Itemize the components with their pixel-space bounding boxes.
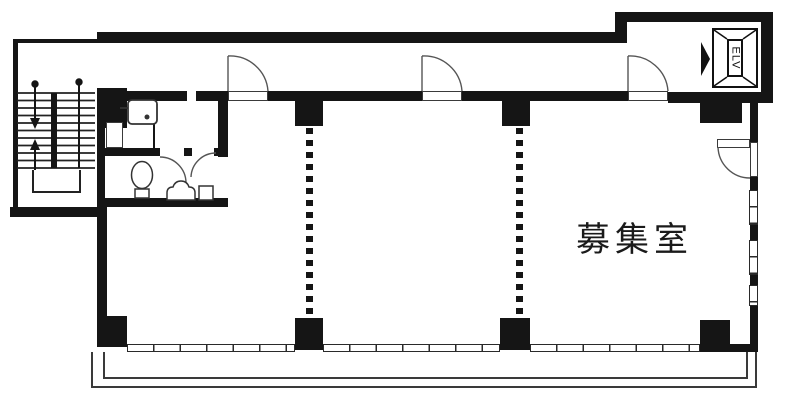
- plan-linework: [0, 0, 787, 406]
- washbasin-icon: [167, 181, 213, 200]
- staircase-icon: [17, 93, 95, 192]
- door-swing-arcs: [160, 56, 750, 183]
- floor-plan: ELV 募集室: [0, 0, 787, 406]
- slop-sink-icon: [120, 100, 157, 124]
- elevator-shaft-diagonals: [714, 30, 756, 86]
- toilet-icon: [132, 162, 153, 199]
